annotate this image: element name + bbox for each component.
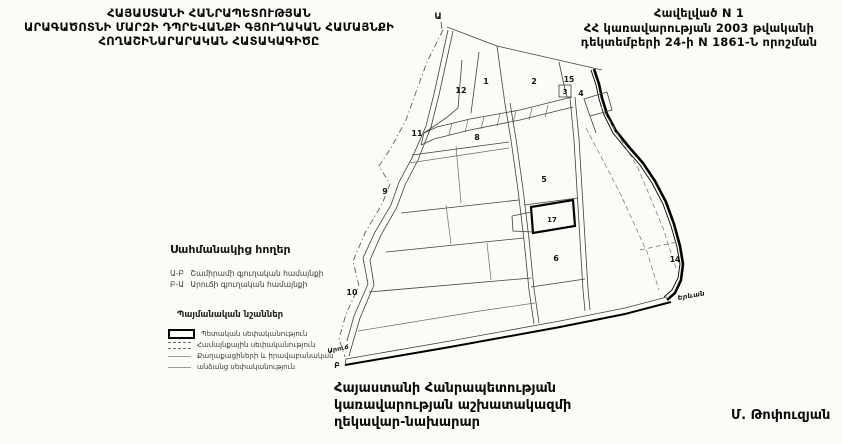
point-b-label: Բ [334,361,339,370]
parcel1-2-divider [497,46,505,104]
field-strip [409,148,509,163]
signatory-name: Մ. Թոփուզյան [731,408,830,423]
parcel-label-12: 12 [455,86,466,95]
west-road-line [347,30,448,341]
parcel-label-4: 4 [578,89,583,98]
signatory-title-line1: Հայաստանի Հանրապետության [334,380,571,397]
parcel-label-8: 8 [474,133,480,142]
central-road [505,104,534,324]
field-dividers [446,146,491,280]
east-field-diagonal [586,128,659,290]
parcel-label-1: 1 [483,77,489,86]
point-a-label: Ա [434,12,441,22]
parcel-label-9: 9 [382,187,388,196]
road-destination-yerevan-label: Երևան [677,289,706,302]
parcel-label-17: 17 [547,216,557,224]
cadastral-map: Ա 1 2 15 3 4 12 11 8 9 5 17 6 10 14 Բ Եր… [0,0,842,444]
east-main-road [594,69,683,300]
signatory-title-line3: ղեկավար-նախարար [334,414,571,431]
road-destination-aruch-label: Արուճ [327,343,350,354]
parcel8-band [424,97,572,133]
parcel6-bottom [531,279,585,287]
parcel-label-15: 15 [564,75,574,84]
south-road-top [346,297,667,359]
field-strip [386,238,524,252]
field-strip [412,142,509,155]
parcel-label-6: 6 [553,254,559,263]
parcel-label-3: 3 [563,88,568,96]
field-strip [358,303,535,331]
parcel-label-10: 10 [346,288,358,297]
west-boundary-line [339,30,443,357]
parcel12-1-divider [471,52,479,113]
signatory-title-line2: կառավարության աշխատակազմի [334,397,571,414]
parcel-label-14: 14 [670,255,680,264]
point-a-tick [441,22,442,29]
parcel-label-2: 2 [531,77,537,86]
field-strip [401,200,519,213]
signatory-title: Հայաստանի Հանրապետության կառավարության ա… [334,380,571,431]
field-strip [369,278,531,292]
parcel-label-11: 11 [411,129,423,138]
parcel8-dividers [449,105,548,135]
parcel-label-5: 5 [541,175,547,184]
north-boundary-line [447,27,602,70]
south-road-bottom [345,302,671,365]
east-field-divider [640,242,677,250]
